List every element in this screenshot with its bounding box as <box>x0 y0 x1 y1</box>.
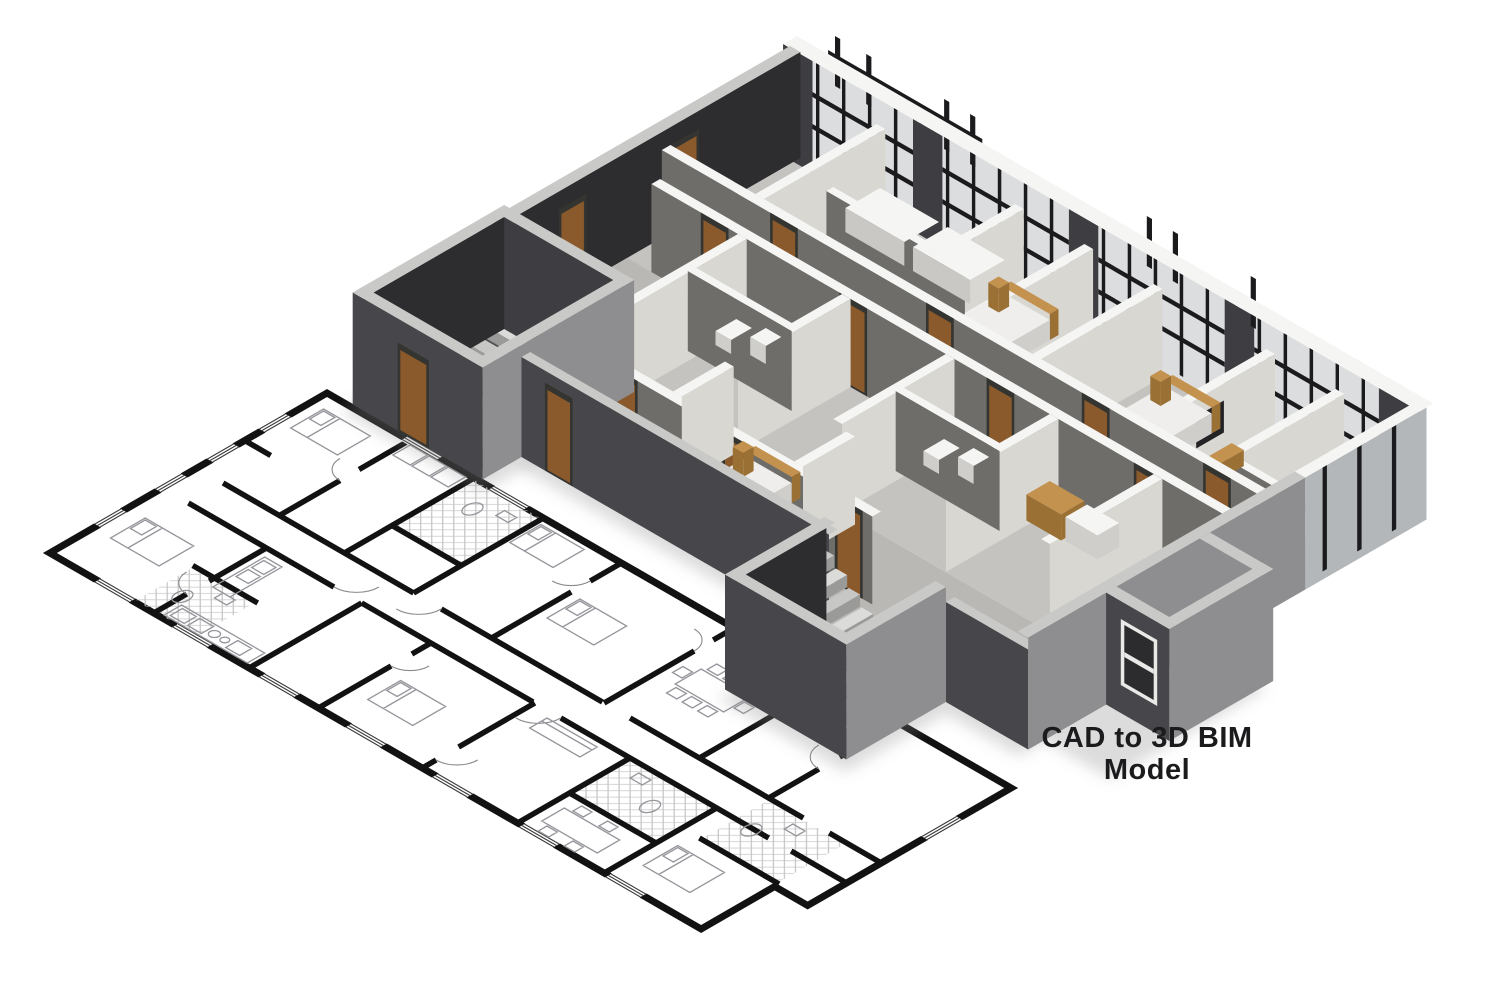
model-face <box>1392 425 1396 532</box>
cad-to-bim-illustration: CAD to 3D BIM Model <box>0 0 1500 1000</box>
model-face <box>1323 465 1327 572</box>
caption-line2: Model <box>1006 754 1288 786</box>
model-face <box>1357 445 1361 552</box>
model-face <box>946 138 949 242</box>
caption-line1: CAD to 3D BIM <box>1006 722 1288 754</box>
model-face <box>548 390 571 483</box>
model-face <box>1050 309 1059 340</box>
model-face <box>400 350 426 445</box>
model-face <box>1206 288 1209 392</box>
model-face <box>1180 273 1184 377</box>
model-face <box>1212 403 1221 434</box>
illustration-canvas <box>0 0 1500 1000</box>
model-face <box>792 472 801 503</box>
caption: CAD to 3D BIM Model <box>1006 722 1288 787</box>
model-face <box>1024 183 1028 287</box>
model-face <box>816 63 819 167</box>
